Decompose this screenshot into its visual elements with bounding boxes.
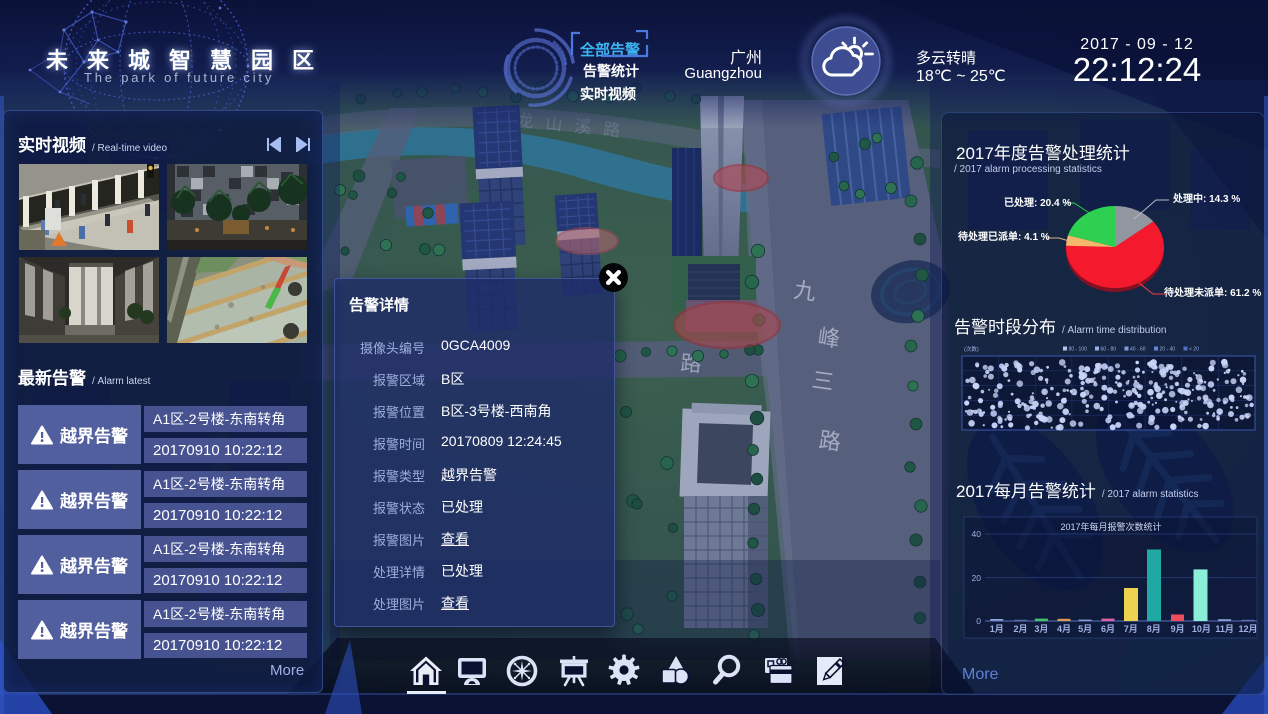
svg-text:6月: 6月 (1101, 624, 1115, 634)
svg-text:已处理: 20.4 %: 已处理: 20.4 % (1004, 196, 1071, 209)
svg-text:80 - 100: 80 - 100 (1069, 346, 1088, 352)
svg-text:待处理已派单: 4.1 %: 待处理已派单: 4.1 % (958, 230, 1050, 243)
svg-text:2017年每月报警次数统计: 2017年每月报警次数统计 (1060, 521, 1161, 532)
svg-text:4月: 4月 (1057, 624, 1071, 634)
svg-text:2月: 2月 (1013, 624, 1027, 634)
svg-text:< 20: < 20 (1189, 346, 1199, 352)
svg-text:3月: 3月 (1034, 624, 1048, 634)
svg-text:待处理未派单: 61.2 %: 待处理未派单: 61.2 % (1164, 286, 1261, 299)
svg-text:10月: 10月 (1192, 624, 1211, 634)
svg-text:20: 20 (972, 573, 982, 583)
svg-text:20 - 40: 20 - 40 (1160, 346, 1176, 352)
svg-text:7月: 7月 (1124, 624, 1138, 634)
svg-text:(次数): (次数) (964, 345, 979, 353)
svg-text:8月: 8月 (1147, 624, 1161, 634)
svg-text:11月: 11月 (1215, 624, 1234, 634)
svg-text:处理中: 14.3 %: 处理中: 14.3 % (1172, 192, 1240, 205)
svg-text:1月: 1月 (990, 624, 1004, 634)
svg-text:9月: 9月 (1171, 624, 1185, 634)
svg-text:60 - 80: 60 - 80 (1101, 346, 1117, 352)
svg-text:40 - 60: 40 - 60 (1130, 346, 1146, 352)
svg-text:12月: 12月 (1238, 624, 1257, 634)
svg-text:0: 0 (976, 616, 981, 626)
svg-text:5月: 5月 (1078, 624, 1092, 634)
svg-text:40: 40 (972, 529, 982, 539)
